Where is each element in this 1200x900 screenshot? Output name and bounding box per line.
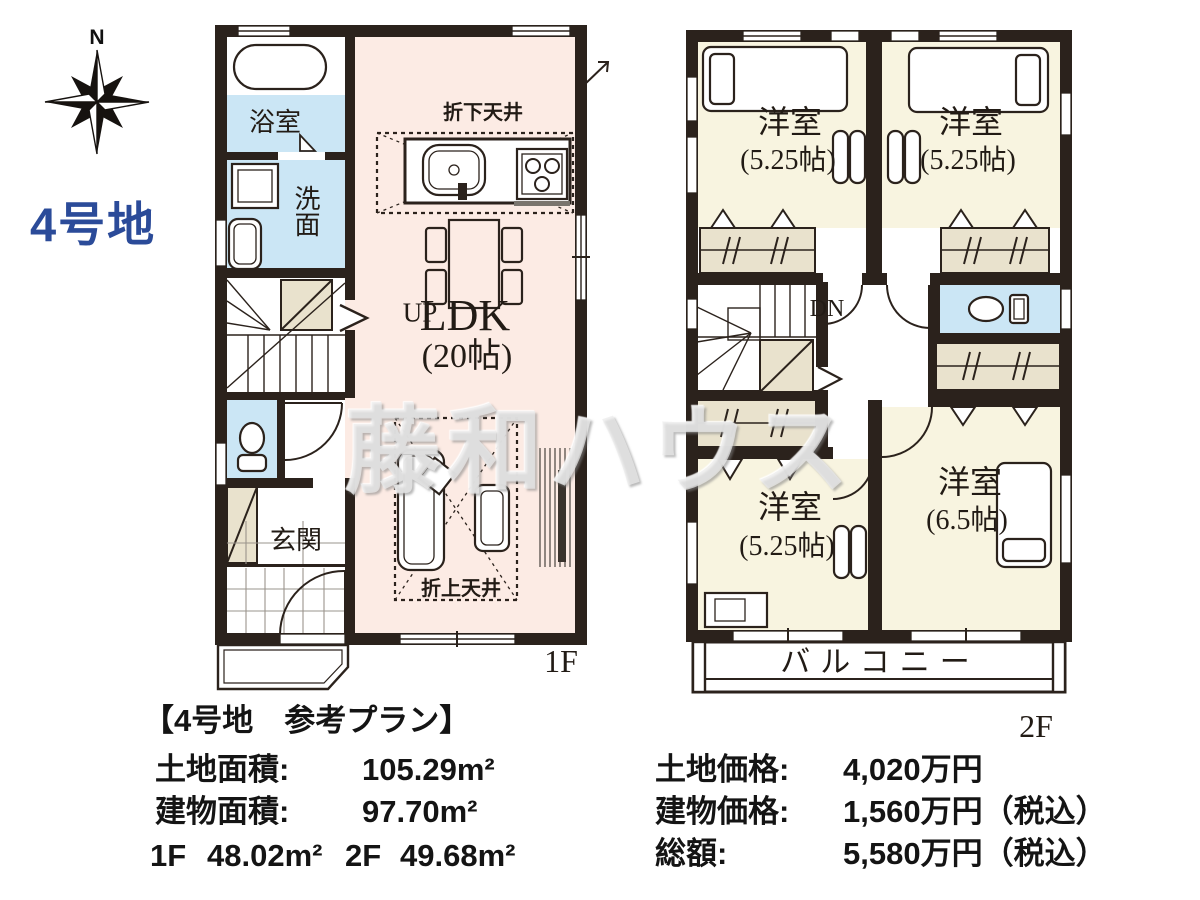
- label-raised-ceiling: 折上天井: [421, 579, 501, 599]
- floor2-plan-drawing: [683, 27, 1075, 717]
- floor2-label: 2F: [1019, 710, 1053, 742]
- floor1-area-value: 48.02m²: [207, 838, 322, 874]
- compass-star: [45, 50, 149, 154]
- label-ldk-size: (20帖): [422, 340, 513, 374]
- compass-rose: N: [37, 22, 157, 172]
- label-bedroom-tr-name: 洋室: [939, 106, 1003, 138]
- label-bedroom-tl-name: 洋室: [758, 106, 822, 138]
- floor1-area-label: 1F: [150, 838, 186, 874]
- building-price-value: 1,560万円（税込）: [843, 794, 1107, 830]
- label-bedroom-tl-size: (5.25帖): [740, 147, 836, 175]
- floor2-area-value: 49.68m²: [400, 838, 515, 874]
- label-bathroom: 浴室: [249, 110, 301, 136]
- total-price-label: 総額:: [655, 836, 727, 872]
- floor1-kitchen: [377, 133, 573, 213]
- label-washroom: 洗面: [292, 185, 318, 237]
- label-ldk-name: LDK: [420, 294, 510, 338]
- floor1-tv-board: [540, 448, 570, 567]
- building-area-value: 97.70m²: [362, 794, 477, 830]
- land-price-label: 土地価格:: [655, 752, 789, 788]
- floorplan-sheet: { "colors": { "wall": "#2b221c", "pink":…: [0, 0, 1200, 900]
- plan-info-title: 【4号地 参考プラン】: [143, 703, 470, 739]
- label-bedroom-br-size: (6.5帖): [926, 507, 1008, 535]
- total-price-value: 5,580万円（税込）: [843, 836, 1107, 872]
- north-label: N: [89, 26, 104, 49]
- label-entrance: 玄関: [270, 528, 322, 554]
- label-dropped-ceiling: 折下天井: [443, 103, 523, 123]
- label-bedroom-bl-name: 洋室: [758, 491, 822, 523]
- floor1-label: 1F: [544, 645, 578, 677]
- label-balcony: バルコニー: [780, 648, 979, 678]
- label-bedroom-br-name: 洋室: [938, 466, 1002, 498]
- floor2-area-label: 2F: [345, 838, 381, 874]
- land-area-label: 土地面積:: [155, 752, 289, 788]
- label-stairs-down: DN: [810, 297, 845, 321]
- label-bedroom-tr-size: (5.25帖): [920, 147, 1016, 175]
- building-area-label: 建物面積:: [155, 794, 289, 830]
- label-bedroom-bl-size: (5.25帖): [739, 533, 835, 561]
- lot-name: 4号地: [30, 186, 156, 255]
- building-price-label: 建物価格:: [655, 794, 789, 830]
- land-price-value: 4,020万円: [843, 752, 983, 788]
- land-area-value: 105.29m²: [362, 752, 495, 788]
